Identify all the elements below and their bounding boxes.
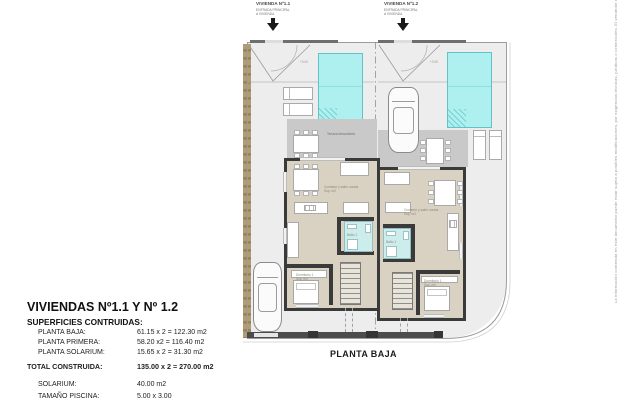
chair: [303, 191, 309, 196]
unit1-header-sub: ENTRADA PRINCIPAL A VIVIENDA: [256, 8, 290, 17]
toilet-icon: [403, 231, 409, 240]
row-value: 135.00 x 2 = 270.00 m2: [137, 362, 214, 371]
summary-title: VIVIENDAS Nº1.1 Y Nº 1.2: [27, 300, 178, 314]
fence-post: [308, 331, 318, 338]
summary-row: PLANTA BAJA: 61.15 x 2 = 122.30 m2: [38, 329, 207, 336]
level-marker: +0.00: [300, 60, 308, 64]
sub-line: A VIVIENDA: [256, 12, 290, 16]
wall: [418, 270, 460, 274]
stairs-unit2: [392, 272, 413, 310]
gate-opening-left: [265, 40, 283, 43]
summary-row: PLANTA PRIMERA: 58.20 x2 = 116.40 m2: [38, 339, 204, 346]
outdoor-table-unit1: [293, 135, 319, 153]
hedge-strip: [243, 44, 251, 338]
chair: [420, 148, 426, 153]
sun-lounger: [489, 130, 502, 160]
gate-opening-right: [394, 40, 412, 43]
chair: [312, 191, 318, 196]
fence-post: [366, 331, 378, 338]
entrance-wall-right: [378, 40, 466, 43]
chair: [294, 130, 300, 135]
pool-unit2: [447, 52, 492, 128]
room-area: Sup. m2: [404, 212, 438, 216]
chair: [445, 140, 451, 145]
shower-icon: [386, 246, 397, 257]
sun-lounger: [473, 130, 486, 160]
pool-lane-line: [448, 86, 491, 87]
plan-caption: PLANTA BAJA: [330, 349, 397, 359]
pergola-line: [407, 318, 408, 332]
chair: [428, 181, 434, 186]
kitchen-counter-unit2: [447, 213, 459, 251]
room-label-bath2: Baño 1: [386, 240, 396, 244]
chair: [457, 199, 463, 204]
unit1-header-title: VIVIENDA Nº1.1: [256, 1, 290, 6]
toilet-icon: [365, 224, 371, 233]
dining-table-unit2: [434, 180, 456, 206]
room-label-living1: Comedor y salón cocina Sup. m2: [324, 185, 358, 193]
row-label: TAMAÑO PISCINA:: [38, 393, 135, 400]
pergola-line: [400, 318, 401, 332]
fence-post: [434, 331, 443, 338]
floor-plan-sheet: +0.00 +0.00 Terraza descubierta Comedor …: [0, 0, 630, 401]
unit2-header-sub: ENTRADA PRINCIPAL A VIVIENDA: [384, 8, 418, 17]
wall: [287, 264, 331, 268]
bed-unit2: [424, 286, 450, 311]
shower-icon: [347, 239, 358, 250]
summary-subtitle: SUPERFICIES CONTRUIDAS:: [27, 317, 143, 327]
chair: [445, 148, 451, 153]
room-label-living2: Comedor y salón cocina Sup. m2: [404, 208, 438, 216]
window: [398, 166, 440, 170]
sink-unit2: [449, 220, 457, 228]
window: [296, 304, 318, 308]
row-label: TOTAL CONSTRUIDA:: [27, 362, 135, 371]
summary-row: SOLARIUM: 40.00 m2: [38, 381, 166, 388]
sideboard-unit1: [343, 202, 369, 214]
summary-row: TAMAÑO PISCINA: 5.00 x 3.00: [38, 393, 172, 400]
dining-table-unit1: [293, 169, 319, 191]
chair: [303, 130, 309, 135]
room-label-bath1: Baño 1: [347, 233, 357, 237]
level-marker: +0.00: [430, 60, 438, 64]
row-value: 15.65 x 2 = 31.30 m2: [137, 349, 203, 356]
wall: [411, 224, 415, 262]
chair: [312, 130, 318, 135]
kitchen-counter-unit1: [287, 222, 299, 258]
window: [459, 243, 463, 259]
unit2-header-title: VIVIENDA Nº1.2: [384, 1, 418, 6]
pool-lane-line: [319, 86, 362, 87]
sub-line: A VIVIENDA: [384, 12, 418, 16]
row-value: 58.20 x2 = 116.40 m2: [137, 339, 204, 346]
pool-steps-hatch: [448, 109, 466, 127]
window: [300, 157, 345, 161]
chair: [294, 191, 300, 196]
room-area: Sup. m2: [324, 189, 358, 193]
wall: [329, 264, 333, 305]
pergola-line: [345, 308, 346, 332]
sofa-unit1: [340, 162, 369, 176]
chair: [312, 164, 318, 169]
driveway-gate-gap: [254, 333, 278, 337]
chair: [294, 164, 300, 169]
room-label-bed2: Dormitorio 1 Sup. m2: [424, 279, 441, 287]
row-value: 5.00 x 3.00: [137, 393, 172, 400]
row-value: 61.15 x 2 = 122.30 m2: [137, 329, 207, 336]
chair: [457, 190, 463, 195]
room-label-bed1: Dormitorio 1 Sup. m2: [296, 273, 313, 281]
sun-lounger: [283, 87, 313, 100]
row-label: PLANTA SOLARIUM:: [38, 349, 135, 356]
room-area: Sup. m2: [296, 277, 313, 281]
chair: [303, 164, 309, 169]
summary-total-row: TOTAL CONSTRUIDA: 135.00 x 2 = 270.00 m2: [27, 362, 214, 371]
chair: [428, 190, 434, 195]
entrance-arrow-icon: [267, 23, 279, 31]
sun-lounger: [283, 103, 313, 116]
row-label: PLANTA PRIMERA:: [38, 339, 135, 346]
chair: [420, 140, 426, 145]
room-area: Sup. m2: [424, 283, 441, 287]
bed-unit1: [293, 280, 319, 304]
chair: [457, 181, 463, 186]
car-unit1: [253, 262, 282, 332]
summary-row: PLANTA SOLARIUM: 15.65 x 2 = 31.30 m2: [38, 349, 203, 356]
pool-unit1: [318, 53, 363, 127]
hob-unit1: [304, 205, 316, 211]
disclaimer-text: La información contenida en este documen…: [613, 7, 618, 303]
wall: [416, 270, 420, 315]
chair: [445, 156, 451, 161]
car-unit2: [388, 87, 419, 153]
row-label: SOLARIUM:: [38, 381, 135, 388]
chair: [428, 199, 434, 204]
window: [424, 314, 444, 318]
sofa-unit2: [384, 172, 410, 185]
sink-icon: [386, 231, 396, 236]
chair: [420, 156, 426, 161]
wall: [337, 217, 341, 255]
window: [283, 172, 287, 192]
row-label: PLANTA BAJA:: [38, 329, 135, 336]
sink-icon: [347, 224, 357, 229]
outdoor-table-unit2: [426, 138, 444, 164]
entrance-arrow-icon: [397, 23, 409, 31]
entrance-wall-left: [250, 40, 338, 43]
stairs-unit1: [340, 262, 361, 305]
row-value: 40.00 m2: [137, 381, 166, 388]
terrace-label: Terraza descubierta: [327, 132, 355, 136]
pergola-line: [352, 308, 353, 332]
